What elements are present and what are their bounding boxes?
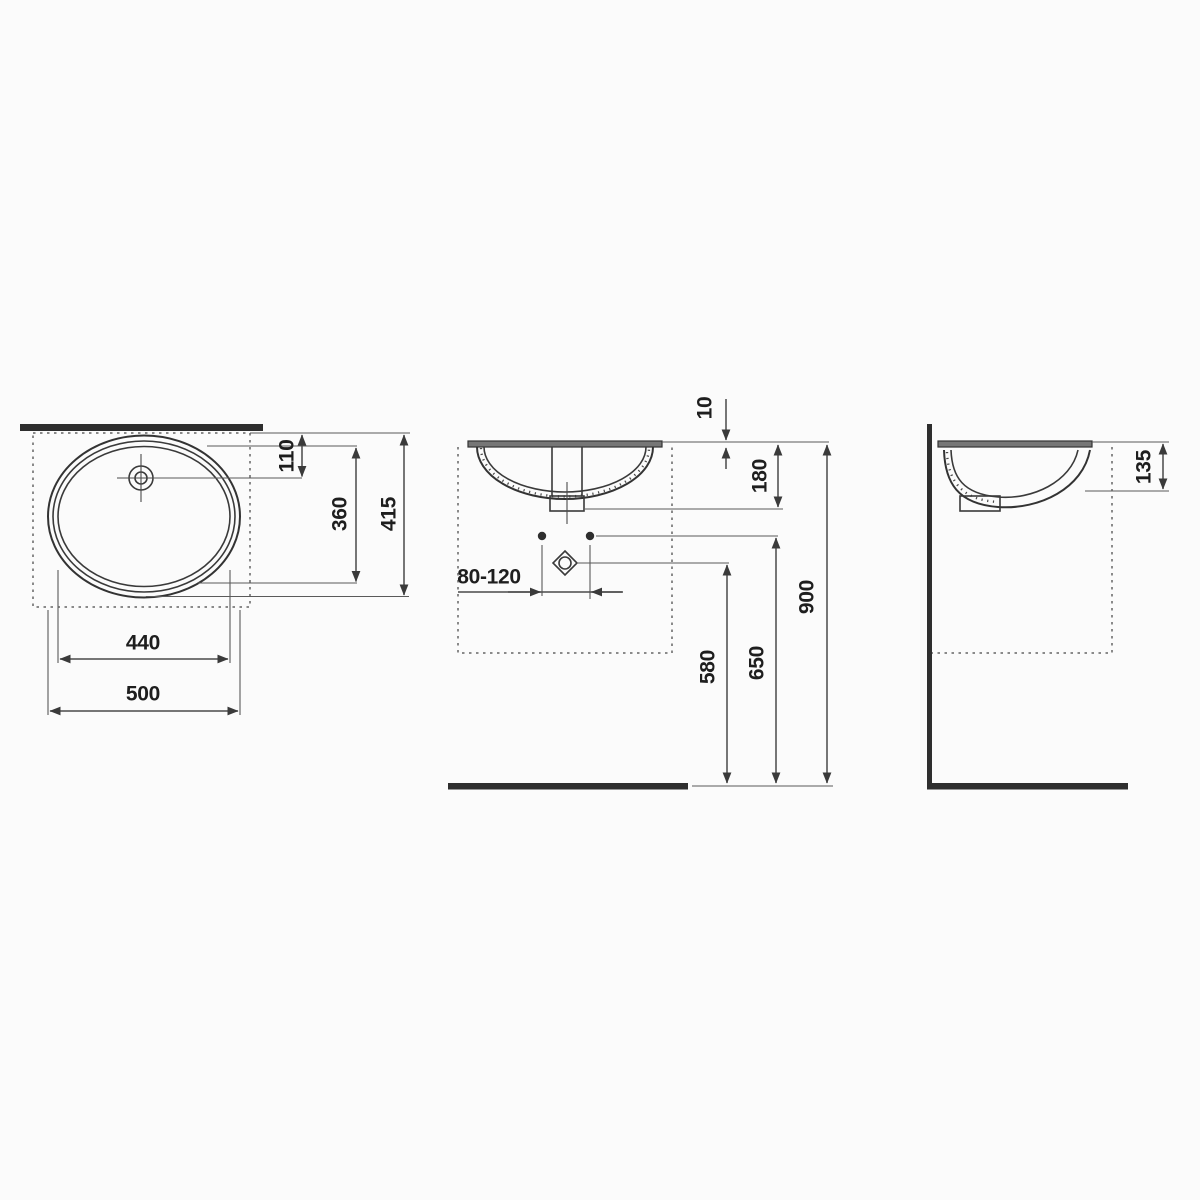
dim-label-110: 110 bbox=[276, 440, 299, 473]
dim-label-135: 135 bbox=[1133, 449, 1156, 484]
counter-edge-bar bbox=[20, 424, 263, 431]
countertop-slab-side bbox=[938, 441, 1092, 447]
washbasin-dimension-drawing: 110 360 415 440 500 bbox=[0, 0, 1200, 1200]
dim-label-650: 650 bbox=[746, 646, 769, 680]
bowl-stipple-texture-side bbox=[947, 452, 998, 502]
dim-label-180: 180 bbox=[749, 459, 772, 493]
dim-label-440: 440 bbox=[126, 632, 160, 655]
dim-label-415: 415 bbox=[378, 496, 401, 531]
basin-rim-outer-ellipse bbox=[48, 436, 240, 598]
side-view: 135 bbox=[927, 424, 1169, 790]
fixing-hole-left bbox=[538, 532, 546, 540]
dim-label-80-120: 80-120 bbox=[457, 566, 521, 589]
wall-line-bar bbox=[927, 424, 932, 789]
basin-rim-inner-ellipse bbox=[58, 447, 230, 587]
drawing-svg: 110 360 415 440 500 bbox=[0, 0, 1200, 1200]
front-view: 10 180 80-120 580 650 900 bbox=[448, 397, 833, 790]
bowl-outer-profile-side bbox=[944, 450, 1090, 507]
dim-label-580: 580 bbox=[697, 650, 720, 684]
top-view: 110 360 415 440 500 bbox=[20, 424, 410, 715]
bowl-stipple-texture bbox=[481, 448, 649, 496]
bowl-inner-profile-side bbox=[951, 450, 1078, 497]
basin-rim-middle-ellipse bbox=[53, 441, 235, 592]
dim-label-10: 10 bbox=[694, 397, 717, 420]
waste-outlet-circle bbox=[559, 557, 571, 569]
fixing-hole-right bbox=[586, 532, 594, 540]
dim-label-900: 900 bbox=[796, 580, 819, 614]
dim-label-360: 360 bbox=[329, 497, 352, 531]
waste-outlet-symbol bbox=[553, 551, 577, 575]
bowl-inner-profile bbox=[484, 447, 646, 492]
waste-outlet-diamond bbox=[553, 551, 577, 575]
floor-line-bar-side bbox=[927, 783, 1128, 790]
countertop-slab bbox=[468, 441, 662, 447]
dim-label-500: 500 bbox=[126, 683, 160, 706]
floor-line-bar bbox=[448, 783, 688, 790]
